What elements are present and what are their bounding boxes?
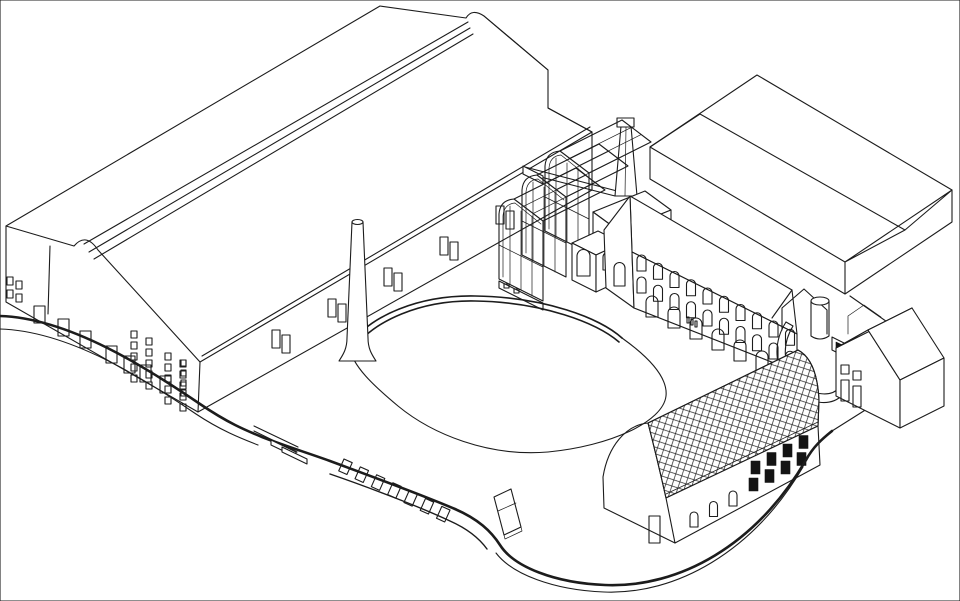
square-chimney: [615, 118, 637, 196]
window: [765, 470, 774, 483]
barn: [603, 350, 820, 543]
window: [767, 453, 776, 466]
cylinder-tower: [811, 297, 829, 339]
house: [836, 305, 944, 428]
fascia-band-bottom: [330, 474, 487, 549]
window: [355, 467, 369, 483]
window: [781, 461, 790, 474]
axonometric-site-drawing: [0, 0, 960, 601]
window: [749, 478, 758, 491]
window: [799, 436, 808, 449]
kiosk: [494, 489, 522, 539]
fascia-window-row: [339, 459, 450, 522]
window: [165, 397, 171, 404]
window: [783, 444, 792, 457]
drawing-canvas: [0, 0, 960, 601]
window: [751, 461, 760, 474]
warehouse: [6, 6, 592, 412]
seating-loop: [349, 296, 666, 453]
window: [420, 499, 434, 515]
